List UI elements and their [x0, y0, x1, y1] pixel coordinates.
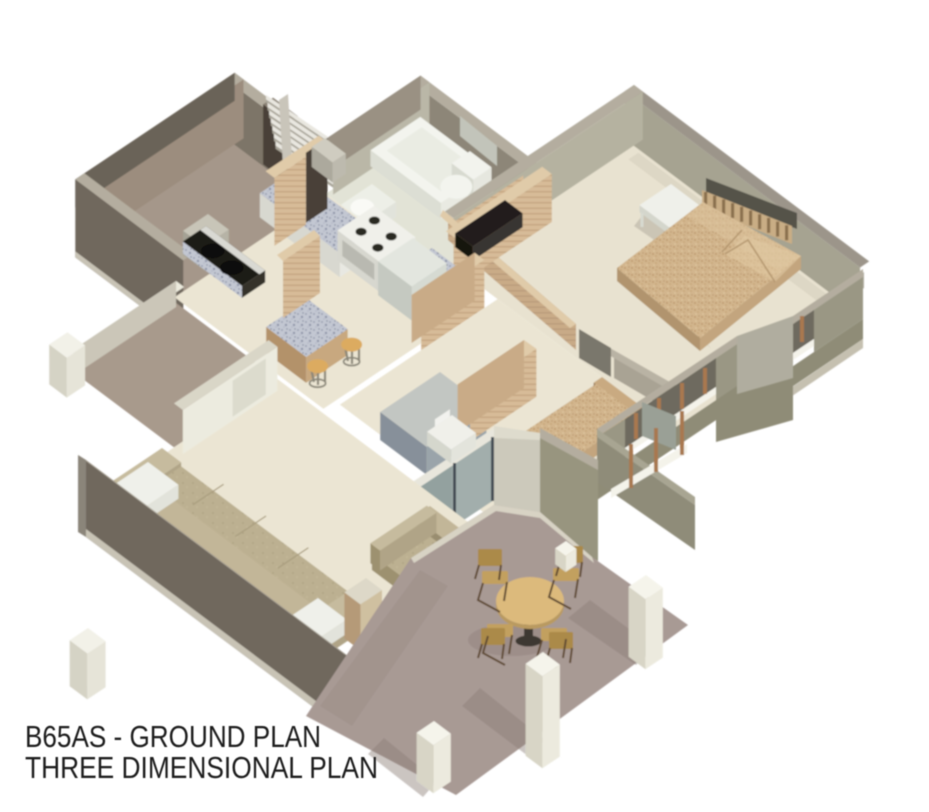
svg-text:B65AS - GROUND PLAN: B65AS - GROUND PLAN [25, 719, 321, 754]
svg-text:THREE DIMENSIONAL PLAN: THREE DIMENSIONAL PLAN [25, 750, 378, 785]
